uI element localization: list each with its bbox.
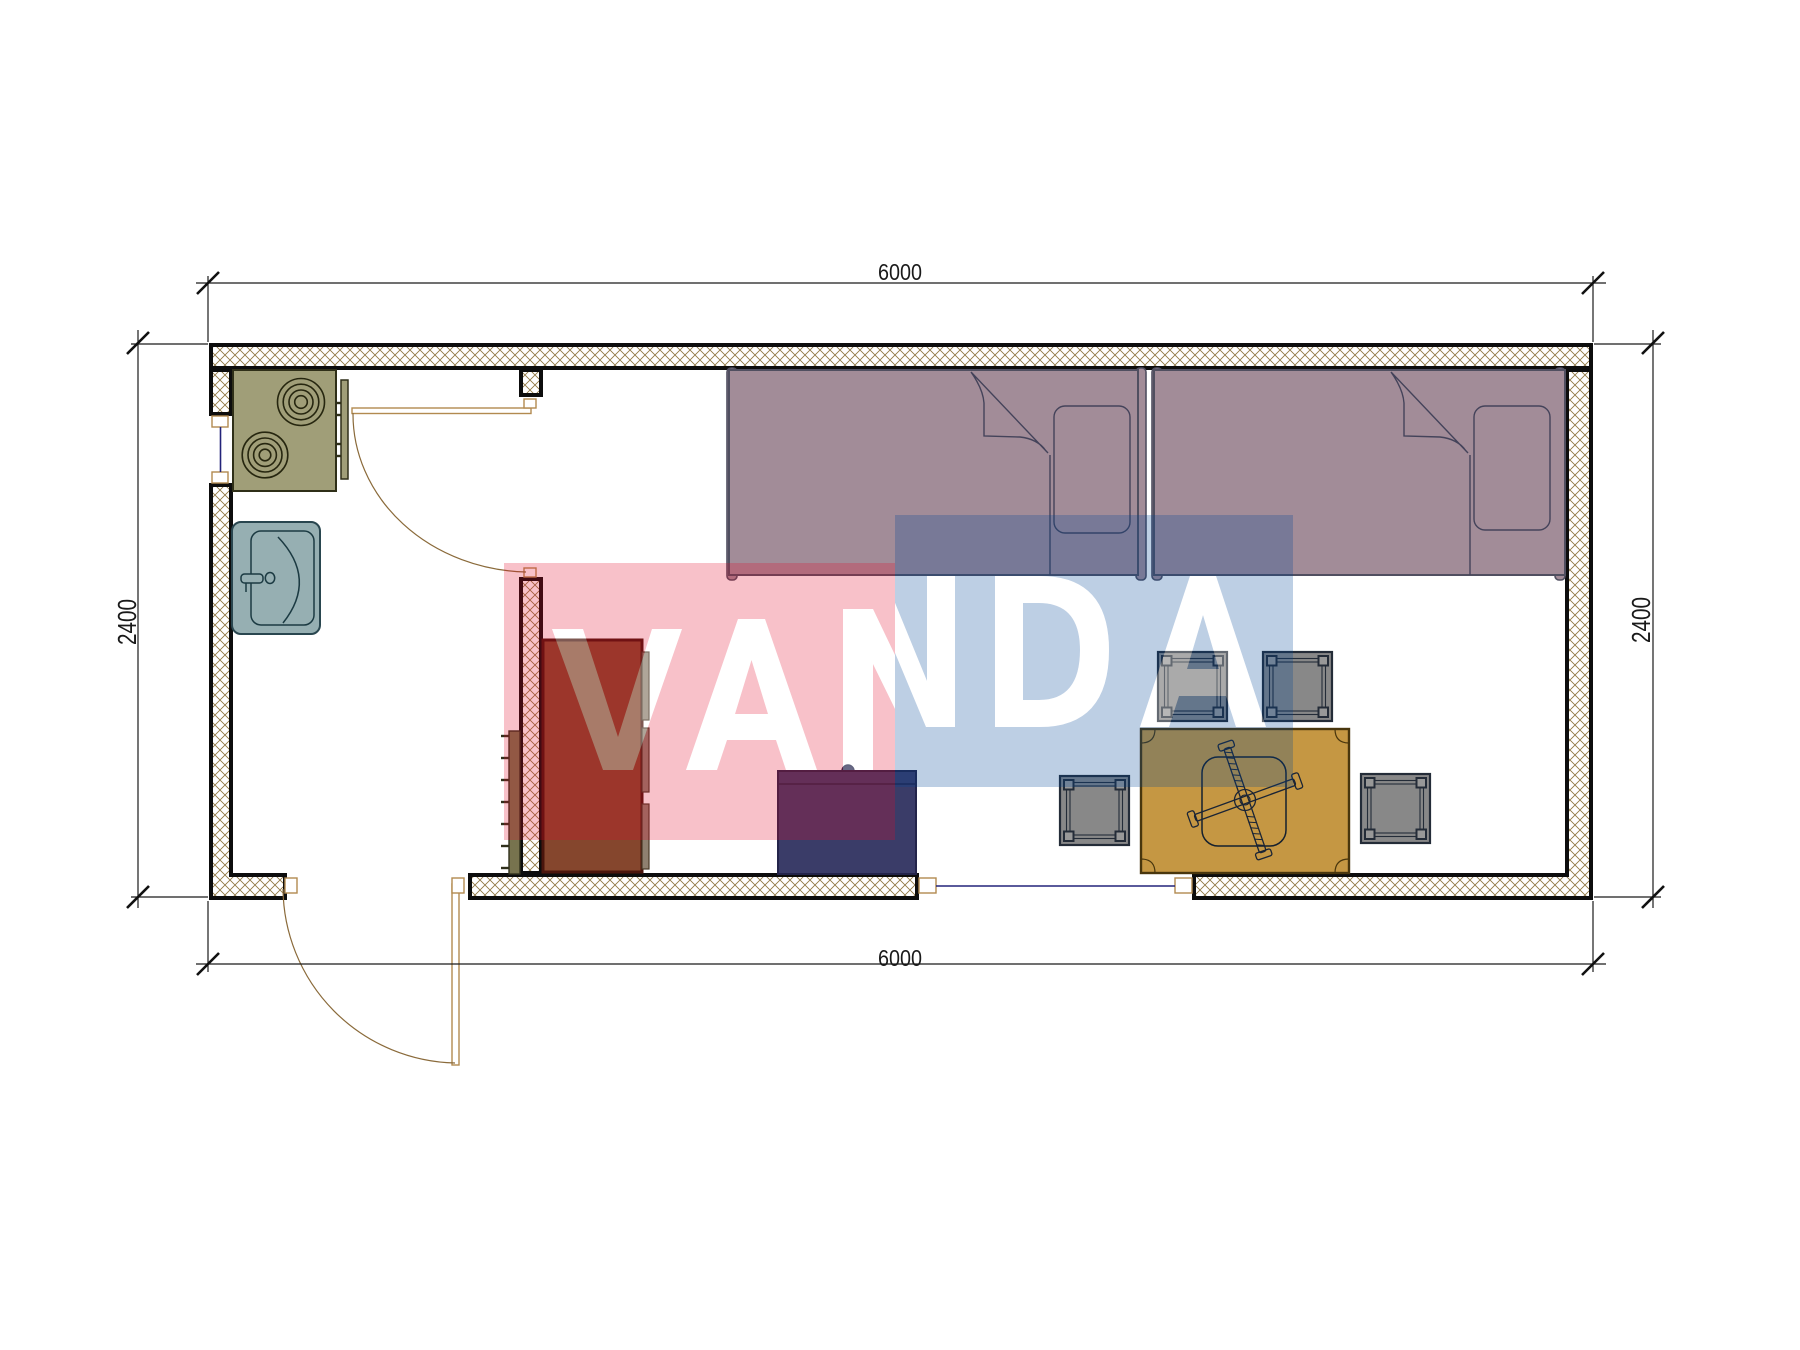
svg-text:6000: 6000: [878, 945, 922, 971]
svg-text:2400: 2400: [112, 599, 142, 645]
svg-text:6000: 6000: [878, 259, 922, 285]
svg-text:2400: 2400: [1626, 597, 1656, 643]
